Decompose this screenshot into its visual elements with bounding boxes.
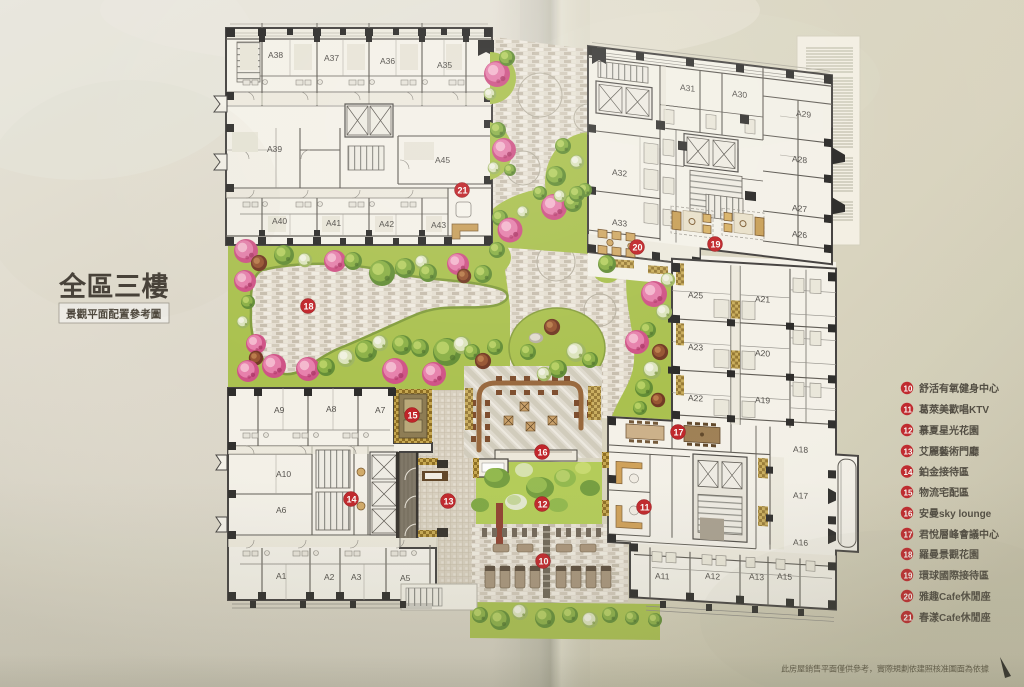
svg-text:A2: A2 bbox=[324, 572, 335, 582]
svg-text:20: 20 bbox=[904, 592, 913, 601]
svg-text:A35: A35 bbox=[437, 60, 452, 70]
svg-text:羅曼景觀花園: 羅曼景觀花園 bbox=[919, 548, 979, 561]
svg-text:A28: A28 bbox=[792, 154, 807, 166]
svg-text:A8: A8 bbox=[326, 404, 337, 414]
svg-text:17: 17 bbox=[904, 530, 913, 539]
svg-text:A1: A1 bbox=[276, 571, 287, 581]
svg-text:A5: A5 bbox=[400, 573, 411, 583]
svg-text:鉑金接待區: 鉑金接待區 bbox=[919, 466, 969, 479]
svg-text:慕夏星光花園: 慕夏星光花園 bbox=[918, 424, 979, 437]
svg-text:A29: A29 bbox=[796, 108, 811, 120]
svg-text:A15: A15 bbox=[777, 571, 792, 582]
svg-text:12: 12 bbox=[538, 500, 548, 510]
svg-text:雅趣Cafe休閒座: 雅趣Cafe休閒座 bbox=[919, 590, 991, 603]
svg-text:A45: A45 bbox=[435, 155, 450, 165]
svg-text:A13: A13 bbox=[749, 571, 764, 582]
svg-text:15: 15 bbox=[904, 488, 913, 497]
svg-text:A12: A12 bbox=[705, 571, 720, 582]
svg-text:A19: A19 bbox=[755, 395, 770, 406]
svg-text:18: 18 bbox=[304, 302, 314, 312]
svg-text:A32: A32 bbox=[612, 167, 627, 179]
svg-text:A42: A42 bbox=[379, 219, 394, 229]
svg-text:A16: A16 bbox=[793, 537, 808, 548]
svg-text:13: 13 bbox=[904, 447, 913, 456]
svg-text:16: 16 bbox=[904, 509, 913, 518]
svg-text:11: 11 bbox=[640, 503, 650, 513]
svg-text:A25: A25 bbox=[688, 290, 703, 301]
svg-text:12: 12 bbox=[904, 426, 913, 435]
svg-text:A26: A26 bbox=[792, 229, 807, 241]
svg-text:17: 17 bbox=[674, 428, 684, 438]
svg-text:A20: A20 bbox=[755, 348, 770, 359]
svg-text:A17: A17 bbox=[793, 490, 808, 501]
svg-text:A21: A21 bbox=[755, 294, 770, 305]
svg-text:景觀平面配置參考圖: 景觀平面配置參考圖 bbox=[65, 308, 161, 321]
svg-text:16: 16 bbox=[538, 448, 548, 458]
svg-text:18: 18 bbox=[904, 550, 913, 559]
svg-text:此房屋銷售平面僅供參考，實際規劃依建照核准圖面為依據: 此房屋銷售平面僅供參考，實際規劃依建照核准圖面為依據 bbox=[781, 664, 989, 674]
svg-text:A41: A41 bbox=[326, 218, 341, 228]
svg-text:A36: A36 bbox=[380, 56, 395, 66]
svg-text:A6: A6 bbox=[276, 505, 287, 515]
svg-text:10: 10 bbox=[904, 384, 913, 393]
svg-text:A3: A3 bbox=[351, 572, 362, 582]
svg-text:A38: A38 bbox=[268, 50, 283, 60]
svg-text:君悅層峰會議中心: 君悅層峰會議中心 bbox=[919, 528, 999, 541]
svg-text:艾麗藝術門廳: 艾麗藝術門廳 bbox=[919, 445, 979, 458]
svg-text:A40: A40 bbox=[272, 216, 287, 226]
svg-text:A43: A43 bbox=[431, 220, 446, 230]
svg-text:A31: A31 bbox=[680, 82, 695, 94]
svg-text:14: 14 bbox=[347, 495, 357, 505]
svg-text:A27: A27 bbox=[792, 203, 807, 215]
svg-text:物流宅配區: 物流宅配區 bbox=[919, 486, 969, 499]
svg-text:19: 19 bbox=[711, 240, 721, 250]
svg-text:A33: A33 bbox=[612, 217, 627, 229]
svg-text:15: 15 bbox=[408, 411, 418, 421]
svg-text:安曼sky lounge: 安曼sky lounge bbox=[919, 507, 992, 520]
svg-text:A22: A22 bbox=[688, 393, 703, 404]
svg-text:A10: A10 bbox=[276, 469, 291, 479]
svg-text:葛萊美歡唱KTV: 葛萊美歡唱KTV bbox=[918, 403, 989, 416]
svg-text:A11: A11 bbox=[655, 571, 670, 582]
svg-text:A30: A30 bbox=[732, 88, 747, 100]
svg-text:A18: A18 bbox=[793, 444, 808, 455]
svg-text:A23: A23 bbox=[688, 342, 703, 353]
svg-text:春漾Cafe休閒座: 春漾Cafe休閒座 bbox=[919, 611, 991, 624]
svg-text:A9: A9 bbox=[274, 405, 285, 415]
svg-text:21: 21 bbox=[904, 613, 913, 622]
svg-text:21: 21 bbox=[458, 186, 468, 196]
svg-text:19: 19 bbox=[904, 571, 913, 580]
svg-text:全區三樓: 全區三樓 bbox=[58, 271, 169, 302]
svg-text:10: 10 bbox=[539, 557, 549, 567]
svg-text:20: 20 bbox=[633, 243, 643, 253]
svg-text:14: 14 bbox=[904, 468, 913, 477]
svg-text:環球國際接待區: 環球國際接待區 bbox=[919, 569, 989, 582]
svg-text:A37: A37 bbox=[324, 53, 339, 63]
svg-text:A39: A39 bbox=[267, 144, 282, 154]
svg-text:A7: A7 bbox=[375, 405, 386, 415]
svg-text:11: 11 bbox=[904, 405, 913, 414]
svg-text:13: 13 bbox=[444, 497, 454, 507]
svg-text:舒活有氧健身中心: 舒活有氧健身中心 bbox=[919, 382, 999, 395]
